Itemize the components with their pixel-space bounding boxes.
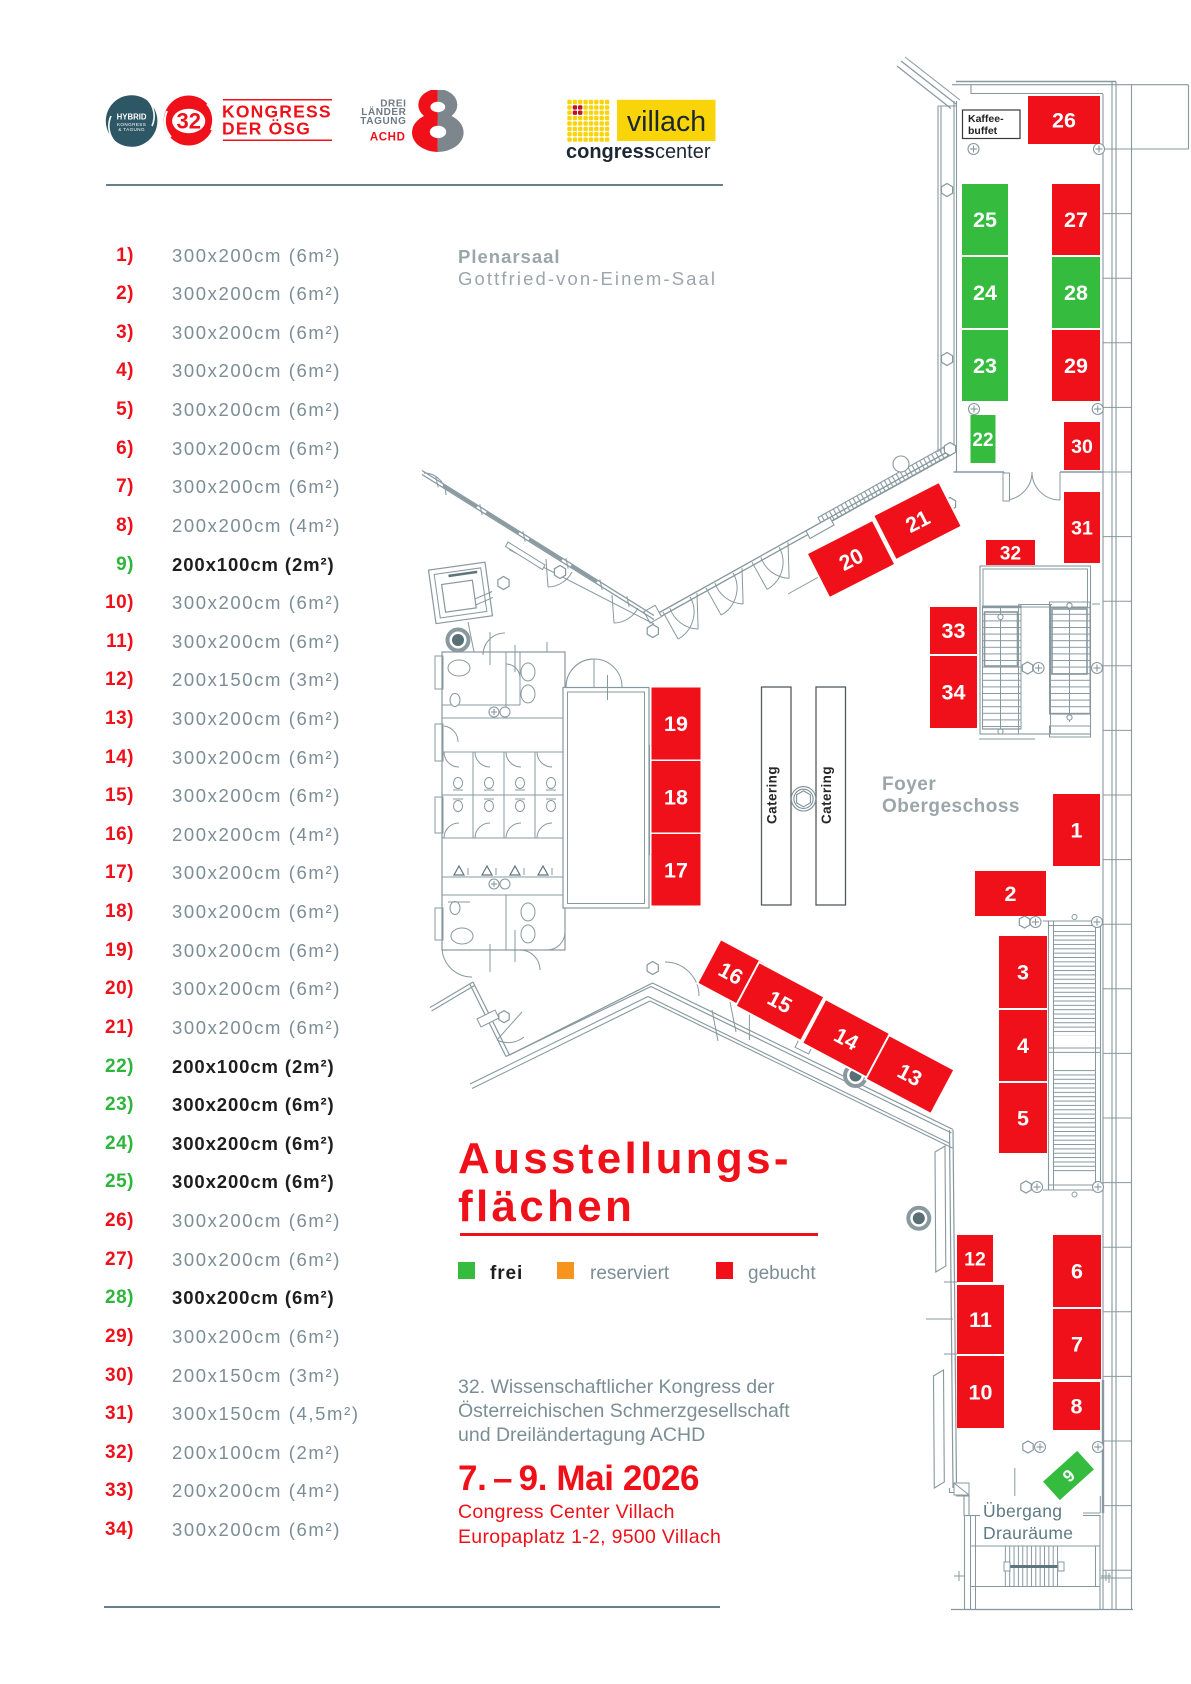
svg-text:10: 10 (969, 1381, 993, 1405)
svg-text:Catering: Catering (765, 766, 780, 824)
svg-text:Foyer: Foyer (882, 774, 936, 795)
svg-text:Catering: Catering (819, 766, 834, 824)
svg-text:Gottfried-von-Einem-Saal: Gottfried-von-Einem-Saal (458, 268, 717, 289)
svg-text:DER ÖSG: DER ÖSG (222, 119, 311, 139)
svg-text:28: 28 (1064, 281, 1088, 305)
svg-text:2: 2 (1005, 882, 1017, 906)
svg-text:32: 32 (176, 109, 200, 134)
svg-text:1: 1 (1071, 819, 1083, 843)
svg-text:31: 31 (1071, 518, 1093, 540)
svg-text:27: 27 (1064, 208, 1088, 232)
svg-text:4: 4 (1017, 1034, 1029, 1058)
svg-text:19: 19 (664, 712, 688, 736)
svg-text:& TAGUNG: & TAGUNG (118, 127, 145, 132)
svg-text:17: 17 (664, 858, 688, 882)
svg-text:3: 3 (1017, 961, 1029, 985)
svg-text:29: 29 (1064, 354, 1088, 378)
svg-text:23: 23 (973, 354, 997, 378)
svg-text:buffet: buffet (968, 125, 998, 137)
svg-text:18: 18 (664, 785, 688, 809)
svg-text:8: 8 (1071, 1395, 1083, 1419)
svg-text:12: 12 (964, 1249, 986, 1271)
svg-text:5: 5 (1017, 1107, 1029, 1131)
svg-text:30: 30 (1071, 436, 1093, 458)
svg-text:Obergeschoss: Obergeschoss (882, 796, 1020, 817)
svg-text:26: 26 (1052, 109, 1076, 133)
svg-text:33: 33 (942, 619, 966, 643)
svg-text:6: 6 (1071, 1260, 1083, 1284)
svg-text:24: 24 (973, 281, 997, 305)
svg-text:22: 22 (972, 430, 993, 451)
svg-text:25: 25 (973, 208, 997, 232)
svg-text:34: 34 (942, 681, 966, 705)
svg-text:11: 11 (969, 1308, 992, 1332)
svg-text:32: 32 (1000, 543, 1021, 564)
svg-text:Kaffee-: Kaffee- (968, 113, 1004, 125)
svg-text:7: 7 (1071, 1333, 1083, 1357)
svg-text:Plenarsaal: Plenarsaal (458, 246, 561, 267)
svg-text:Drauräume: Drauräume (983, 1523, 1073, 1543)
svg-text:HYBRID: HYBRID (117, 113, 147, 122)
svg-text:Übergang: Übergang (983, 1501, 1062, 1521)
